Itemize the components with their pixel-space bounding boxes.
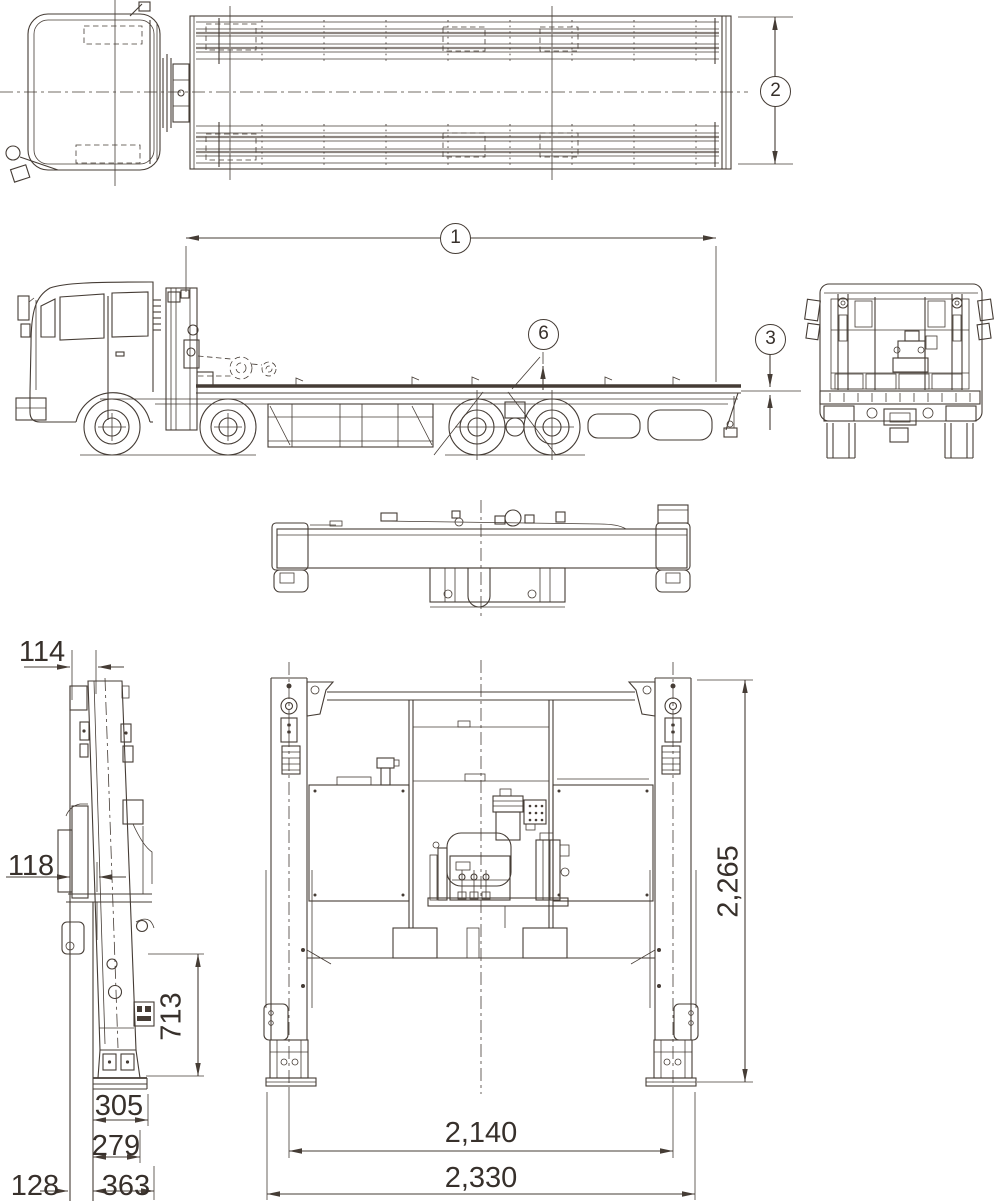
dim-frame-overall-width: 2,330 — [421, 1164, 541, 1193]
dim-mast-side-offset: 128 — [0, 1172, 85, 1201]
dim-frame-leg-span: 2,140 — [421, 1119, 541, 1148]
dim-mast-base-width: 363 — [76, 1172, 176, 1201]
dim-mast-mid-width: 118 — [0, 852, 71, 881]
balloon-deck-marker: 6 — [528, 319, 559, 350]
balloon-overall-length: 1 — [440, 223, 471, 254]
blueprint-canvas: 1 2 3 6 114 118 713 305 279 128 363 2,26… — [0, 0, 997, 1201]
side-view — [16, 282, 801, 460]
wheel-front-2 — [200, 399, 256, 455]
dimension-lines-top — [186, 17, 793, 382]
dim-mast-pad-width: 305 — [69, 1092, 169, 1121]
balloon-deck-height: 3 — [755, 324, 786, 355]
dim-mast-top-width: 114 — [2, 638, 82, 667]
dim-mast-leg-height: 713 — [158, 967, 187, 1067]
wheel-front-1 — [84, 399, 140, 455]
balloon-bed-width: 2 — [760, 76, 791, 107]
dim-frame-overall-height: 2,265 — [715, 812, 744, 952]
plan-view — [0, 0, 748, 186]
blueprint-drawing — [0, 0, 997, 1201]
crossbeam-view — [272, 500, 690, 618]
dim-mast-foot-width: 279 — [66, 1132, 166, 1161]
rear-view — [805, 284, 994, 458]
